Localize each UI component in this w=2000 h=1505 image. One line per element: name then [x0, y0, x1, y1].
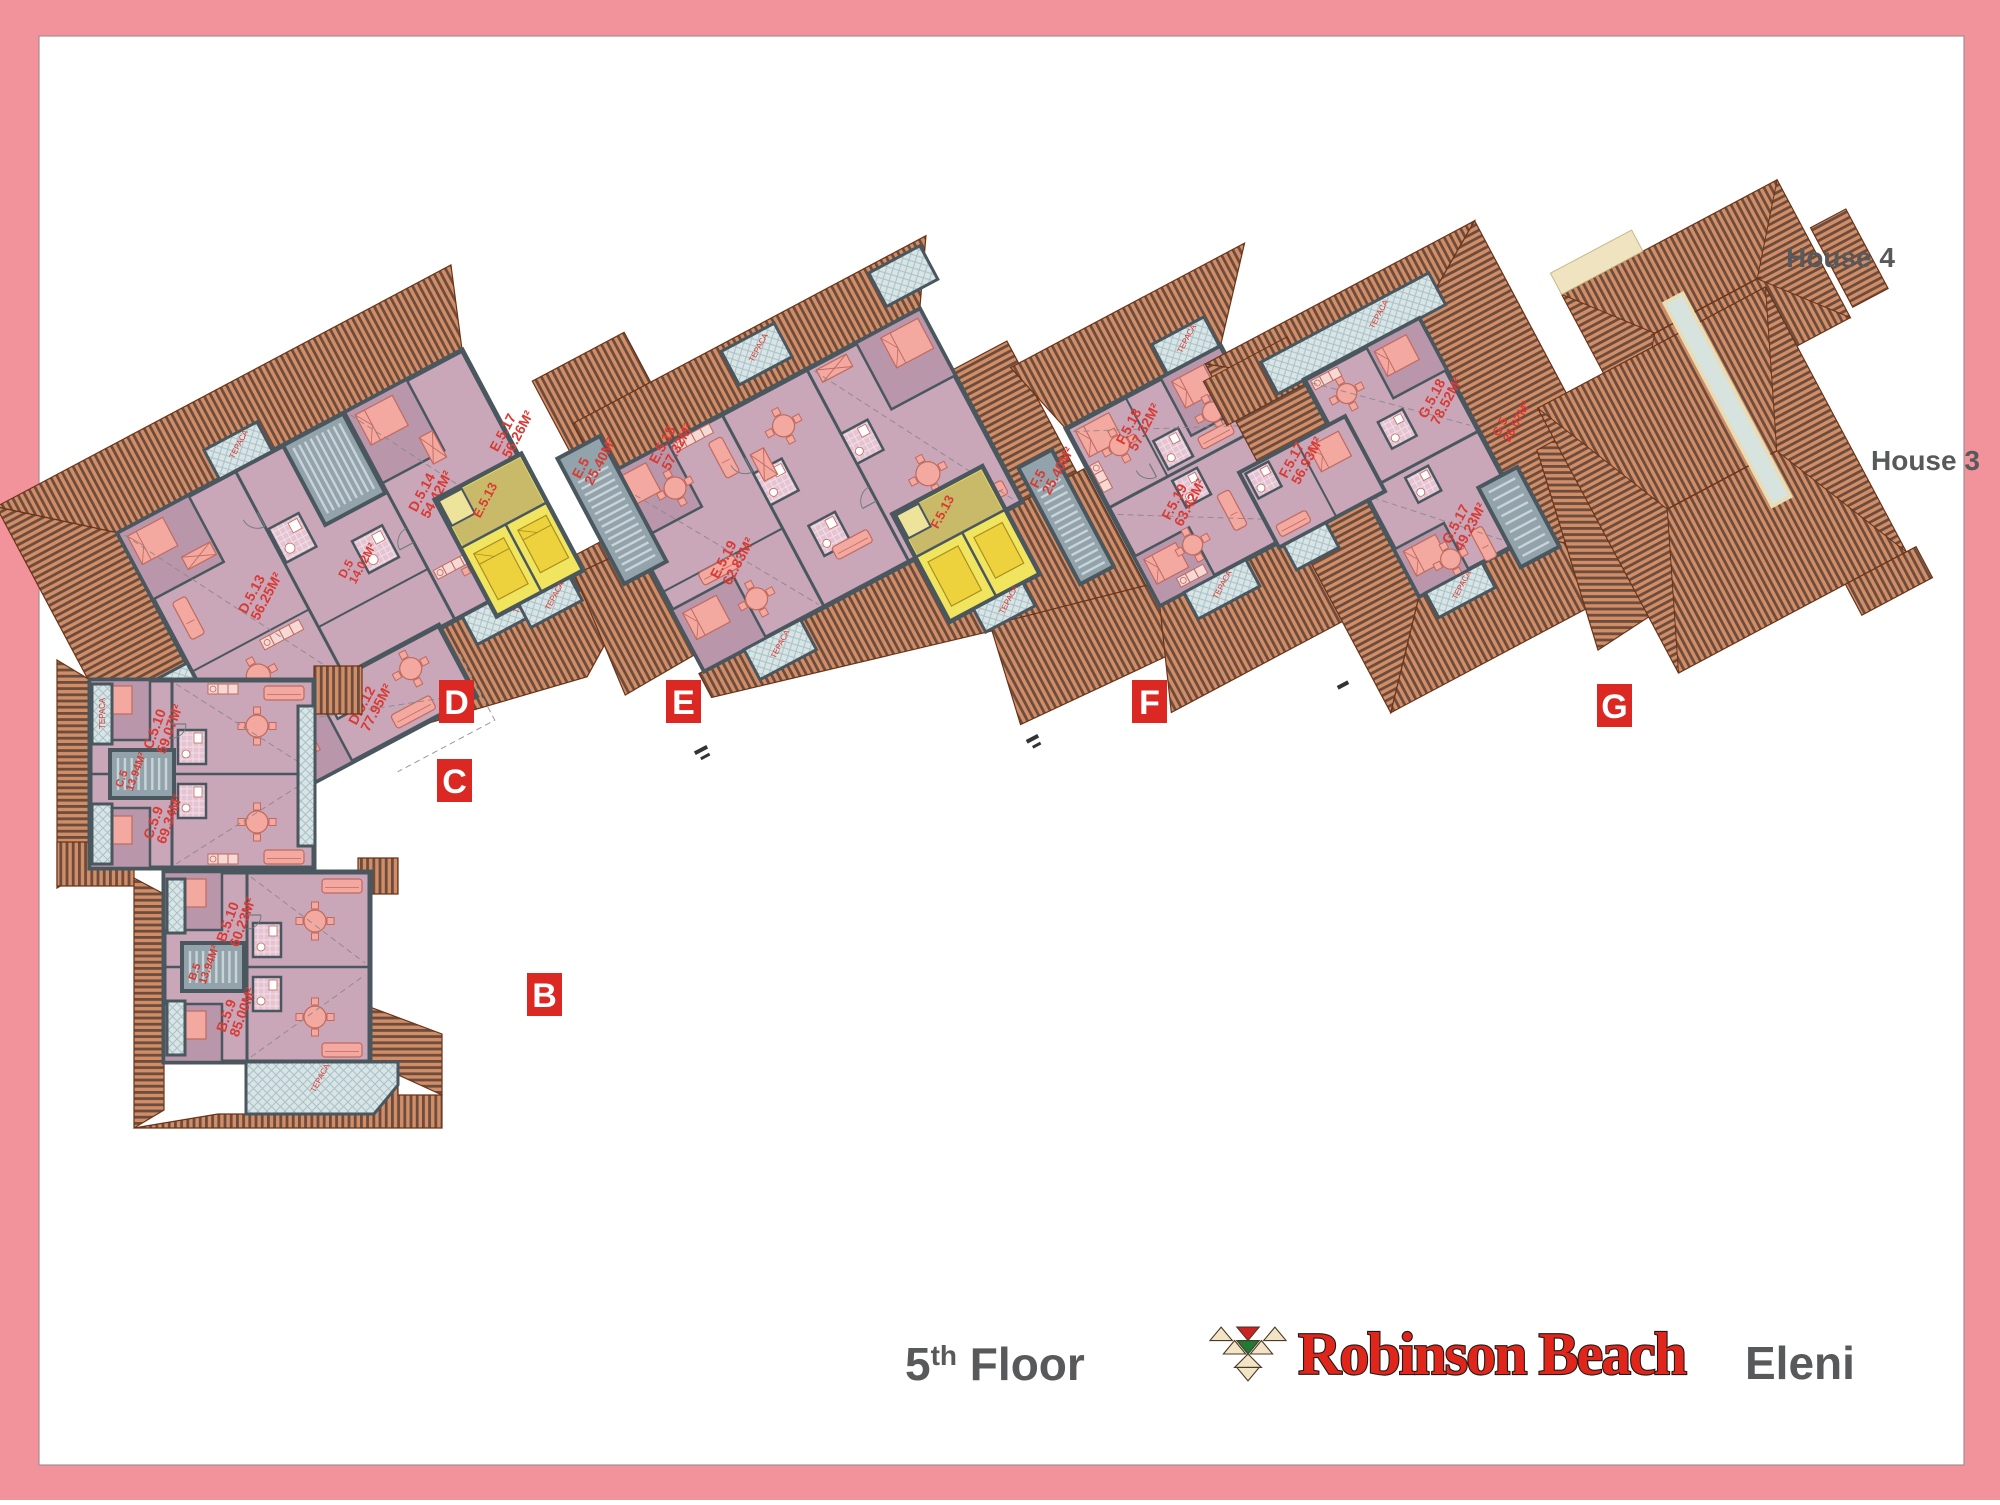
svg-text:Eleni: Eleni — [1745, 1337, 1855, 1389]
svg-text:B: B — [532, 977, 557, 1015]
svg-text:Robinson Beach: Robinson Beach — [1298, 1321, 1687, 1387]
svg-text:House 4: House 4 — [1786, 242, 1895, 273]
svg-text:C: C — [442, 763, 467, 801]
svg-text:G: G — [1601, 688, 1627, 726]
svg-text:E: E — [672, 684, 695, 722]
svg-text:D: D — [444, 684, 469, 722]
svg-text:House 3: House 3 — [1871, 445, 1980, 476]
svg-text:F: F — [1139, 684, 1160, 722]
svg-text:ТЕРАСА: ТЕРАСА — [98, 697, 107, 729]
